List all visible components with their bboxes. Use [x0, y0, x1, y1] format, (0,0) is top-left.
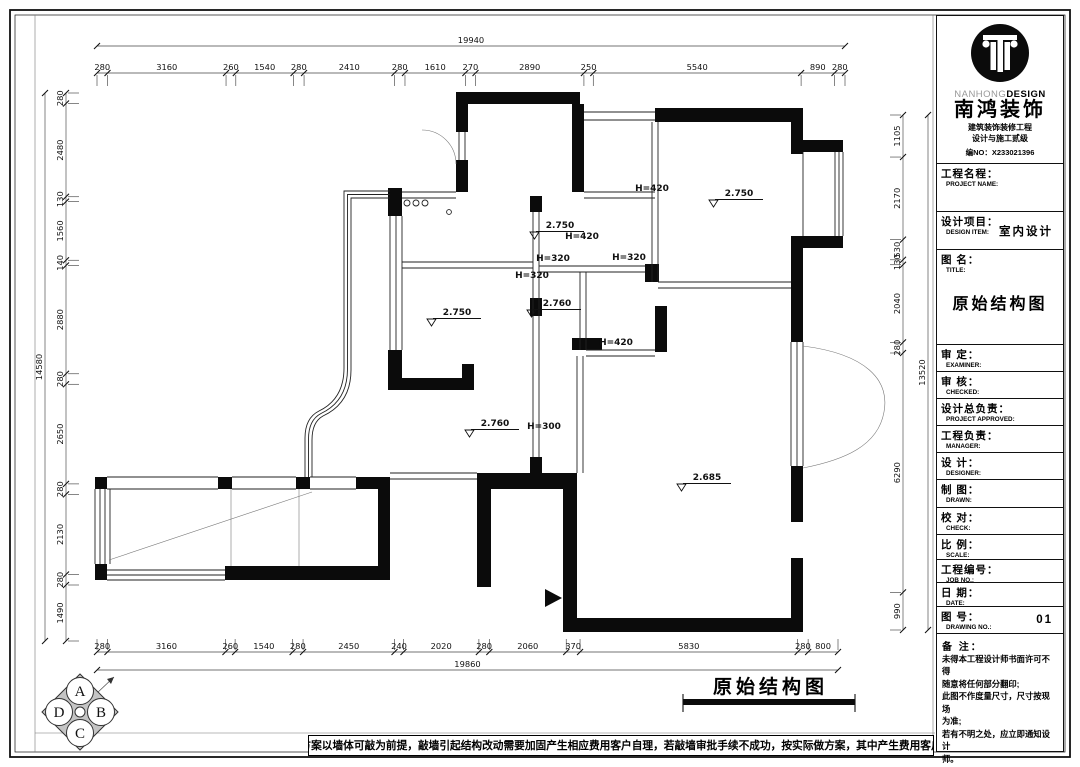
dimension-label: 2130 [55, 524, 65, 545]
field-value: 原始结构图 [941, 290, 1059, 314]
field-sublabel: EXAMINER: [946, 362, 1059, 369]
dimension-label: 280 [291, 62, 307, 72]
field-sublabel: DRAWN: [946, 497, 1059, 504]
dimension-label: 2040 [892, 293, 902, 314]
dimension-label: 2880 [55, 309, 65, 330]
note-line: 随意将任何部分翻印; [942, 678, 1058, 690]
dimension-label: 3160 [156, 641, 177, 651]
note-line: 此图不作度量尺寸，尺寸按现场 [942, 690, 1058, 715]
brand-chinese-name: 南鸿装饰 [937, 100, 1063, 121]
drawing-caption: 原始结构图 [668, 672, 873, 699]
dimension-label: 1610 [425, 62, 446, 72]
walls [95, 92, 843, 632]
titleblock-row: 设 计：DESIGNER: [937, 453, 1063, 480]
height-label: H=420 [599, 338, 633, 348]
notes-section: 备 注： 未得本工程设计师书面许可不得随意将任何部分翻印;此图不作度量尺寸，尺寸… [937, 634, 1063, 767]
dimension-label: 2060 [517, 641, 538, 651]
field-sublabel: PROJECT NAME: [946, 181, 1059, 188]
compass-letter-right: B [96, 705, 106, 721]
dimension-label: 250 [581, 62, 597, 72]
dimension-label: 130 [892, 254, 902, 270]
compass-letter-left: D [54, 705, 65, 721]
field-label: 审 核： [941, 374, 1059, 389]
field-label: 工程编号： [941, 562, 1059, 577]
dimension-label: 3160 [156, 62, 177, 72]
dimension-label: 2450 [338, 641, 359, 651]
dimension-label: 2170 [892, 188, 902, 209]
height-label: H=420 [565, 232, 599, 242]
field-sublabel: CHECK: [946, 525, 1059, 532]
floor-plan: A B C D 28031602601540280241028016102702… [0, 0, 1080, 767]
dimension-label: 240 [391, 641, 407, 651]
titleblock-row: 图 名：TITLE:原始结构图 [937, 250, 1063, 345]
field-value: 01 [1036, 614, 1053, 626]
dimension-label: 280 [832, 62, 848, 72]
reminder-banner: 提醒：方案以墙体可敲为前提，敲墙引起结构改动需要加固产生相应费用客户自理，若敲墙… [308, 735, 934, 756]
field-label: 比 例： [941, 537, 1059, 552]
titleblock-row: 审 定：EXAMINER: [937, 345, 1063, 372]
orientation-compass: A B C D [42, 674, 118, 750]
brand-license-no: 编NO：X233021396 [937, 147, 1063, 158]
field-sublabel: SCALE: [946, 552, 1059, 559]
titleblock-row: 比 例：SCALE: [937, 535, 1063, 560]
nanhong-logo-icon [970, 23, 1030, 83]
dimension-label: 13520 [917, 359, 927, 385]
dimension-label: 140 [55, 255, 65, 271]
titleblock-row: 校 对：CHECK: [937, 508, 1063, 535]
dimension-label: 1560 [55, 220, 65, 241]
titleblock-row: 工程编号：JOB NO.: [937, 560, 1063, 583]
field-label: 设计总负责： [941, 401, 1059, 416]
dimension-label: 1540 [253, 641, 274, 651]
dimension-label: 2480 [55, 140, 65, 161]
level-label: 2.760 [543, 299, 571, 309]
field-label: 校 对： [941, 510, 1059, 525]
field-label: 审 定： [941, 347, 1059, 362]
company-logo-section: NANHONGDESIGN 南鸿装饰 建筑装饰装修工程设计与施工贰级 编NO：X… [937, 16, 1063, 164]
height-label: H=320 [536, 254, 570, 264]
titleblock-row: 图 号：DRAWING NO.:01 [937, 607, 1063, 634]
dimension-label: 19940 [458, 35, 484, 45]
dimension-label: 130 [55, 191, 65, 207]
dimension-label: 280 [55, 572, 65, 588]
dimension-label: 270 [463, 62, 479, 72]
field-label: 日 期： [941, 585, 1059, 600]
titleblock-row: 设计项目：DESIGN ITEM:室内设计 [937, 212, 1063, 250]
dimension-label: 280 [290, 641, 306, 651]
entry-door-arrow [545, 589, 562, 607]
note-line: 未得本工程设计师书面许可不得 [942, 653, 1058, 678]
titleblock-row: 设计总负责：PROJECT APPROVED: [937, 399, 1063, 426]
dimension-label: 5540 [687, 62, 708, 72]
dimension-label: 1490 [55, 602, 65, 623]
height-label: H=420 [635, 184, 669, 194]
field-value: 室内设计 [999, 223, 1053, 239]
field-sublabel: MANAGER: [946, 443, 1059, 450]
level-label: 2.750 [443, 308, 471, 318]
notes-title: 备 注： [942, 638, 1058, 653]
dimension-label: 260 [223, 62, 239, 72]
height-label: H=300 [527, 422, 561, 432]
dimension-label: 280 [795, 641, 811, 651]
field-label: 制 图： [941, 482, 1059, 497]
notes-lines: 未得本工程设计师书面许可不得随意将任何部分翻印;此图不作度量尺寸，尺寸按现场为准… [942, 653, 1058, 765]
level-label: 2.750 [546, 221, 574, 231]
level-label: 2.685 [693, 473, 721, 483]
brand-subtitle: 建筑装饰装修工程设计与施工贰级 [937, 123, 1063, 145]
dimension-label: 14580 [34, 354, 44, 380]
dimension-label: 280 [55, 371, 65, 387]
dimension-label: 280 [392, 62, 408, 72]
dimension-label: 2650 [55, 424, 65, 445]
dimension-label: 280 [476, 641, 492, 651]
field-sublabel: DATE: [946, 600, 1059, 607]
dimension-label: 2410 [339, 62, 360, 72]
field-sublabel: CHECKED: [946, 389, 1059, 396]
dimension-label: 2890 [519, 62, 540, 72]
dimension-label: 260 [222, 641, 238, 651]
field-label: 设 计： [941, 455, 1059, 470]
field-label: 工程名程： [941, 166, 1059, 181]
dimension-label: 280 [94, 62, 110, 72]
height-label: H=320 [515, 271, 549, 281]
dimension-label: 280 [94, 641, 110, 651]
titleblock-row: 日 期：DATE: [937, 583, 1063, 607]
dimension-label: 990 [892, 603, 902, 619]
field-label: 图 名： [941, 252, 1059, 267]
titleblock-fields: 工程名程：PROJECT NAME:设计项目：DESIGN ITEM:室内设计图… [937, 164, 1063, 634]
dimension-label: 1540 [254, 62, 275, 72]
dimension-label: 5830 [678, 641, 699, 651]
field-label: 工程负责： [941, 428, 1059, 443]
title-block: NANHONGDESIGN 南鸿装饰 建筑装饰装修工程设计与施工贰级 编NO：X… [936, 15, 1064, 752]
height-label: H=320 [612, 253, 646, 263]
titleblock-row: 审 核：CHECKED: [937, 372, 1063, 399]
titleblock-row: 工程名程：PROJECT NAME: [937, 164, 1063, 212]
dimension-label: 2020 [431, 641, 452, 651]
note-line: 为准; [942, 715, 1058, 727]
level-label: 2.750 [725, 189, 753, 199]
dimension-label: 6290 [892, 462, 902, 483]
compass-letter-top: A [75, 684, 86, 700]
dimension-label: 890 [810, 62, 826, 72]
dimension-label: 280 [55, 481, 65, 497]
titleblock-row: 制 图：DRAWN: [937, 480, 1063, 508]
drawing-sheet: A B C D 28031602601540280241028016102702… [0, 0, 1080, 767]
dimension-label: 19860 [454, 659, 480, 669]
note-line: 师。 [942, 753, 1058, 765]
dimension-label: 280 [55, 90, 65, 106]
field-sublabel: TITLE: [946, 267, 1059, 274]
field-sublabel: PROJECT APPROVED: [946, 416, 1059, 423]
titleblock-row: 工程负责：MANAGER: [937, 426, 1063, 453]
note-line: 若有不明之处，应立即通知设计 [942, 728, 1058, 753]
dimension-label: 800 [815, 641, 831, 651]
compass-letter-bottom: C [75, 726, 85, 742]
dimension-label: 1105 [892, 125, 902, 146]
level-label: 2.760 [481, 419, 509, 429]
dimension-label: 370 [565, 641, 581, 651]
field-sublabel: DESIGNER: [946, 470, 1059, 477]
dimension-label: 280 [892, 340, 902, 356]
